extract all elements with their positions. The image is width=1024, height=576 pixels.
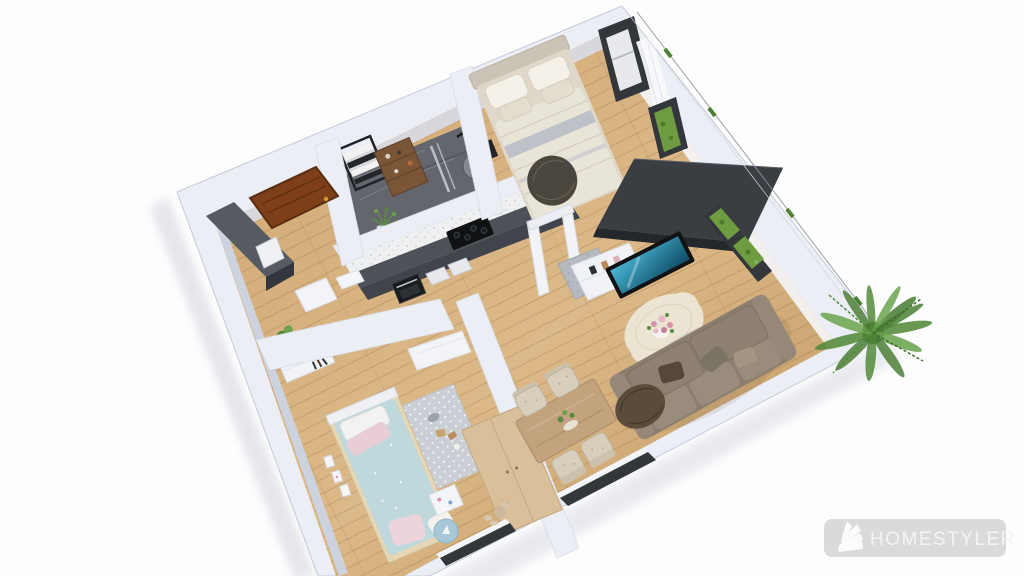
flower [654,329,659,334]
leaf [392,212,396,216]
leaf [647,326,651,330]
flower [667,322,673,328]
teddy-ear [507,501,510,504]
slipper [490,521,498,526]
foliage-dot [754,260,758,264]
homestyler-watermark: HOMESTYLER [824,519,1016,557]
foliage-dot [661,122,666,127]
teddy-ear [501,500,504,503]
leaf [670,329,674,333]
floorplan-render: HOMESTYLER [0,0,1024,576]
door-handle [324,197,328,201]
floorplan-canvas: HOMESTYLER [0,0,1024,576]
leaf [374,209,378,213]
flower [661,327,667,333]
foliage-dot [746,250,751,255]
flower [659,316,666,323]
watermark-brand-text: HOMESTYLER [870,529,1016,550]
slipper [484,516,492,521]
leaf [665,313,669,317]
foliage-dot [669,136,673,140]
leaf [385,207,389,211]
flower [651,321,657,327]
foliage-dot [720,220,725,225]
card-dot [336,476,338,478]
